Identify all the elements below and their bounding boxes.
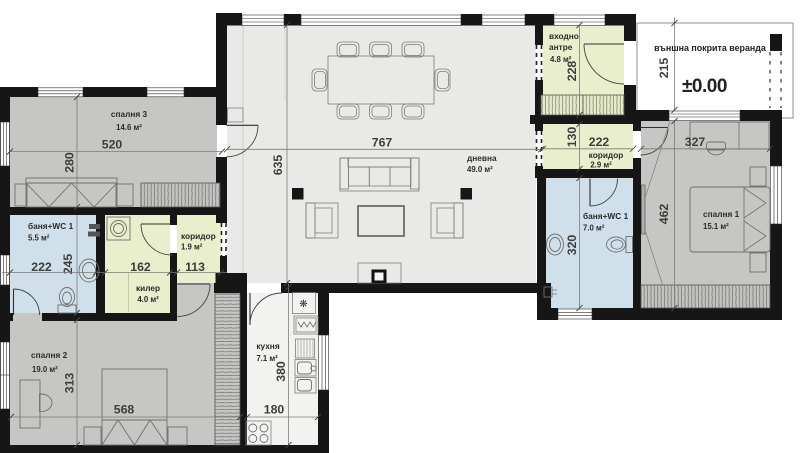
svg-text:антре: антре bbox=[549, 42, 573, 52]
svg-text:4.8 м²: 4.8 м² bbox=[550, 55, 572, 64]
svg-text:7.1 м²: 7.1 м² bbox=[256, 354, 278, 363]
svg-text:спалня 3: спалня 3 bbox=[111, 109, 148, 119]
svg-text:баня+WC 1: баня+WC 1 bbox=[583, 211, 629, 221]
svg-text:килер: килер bbox=[136, 283, 160, 293]
svg-text:162: 162 bbox=[130, 260, 151, 274]
svg-text:спалня 2: спалня 2 bbox=[31, 350, 68, 360]
svg-text:4.0 м²: 4.0 м² bbox=[137, 295, 159, 304]
svg-text:635: 635 bbox=[271, 155, 285, 176]
svg-text:14.6 м²: 14.6 м² bbox=[116, 123, 142, 132]
svg-text:320: 320 bbox=[565, 235, 579, 256]
svg-text:130: 130 bbox=[565, 127, 579, 148]
svg-text:коридор: коридор bbox=[181, 231, 216, 241]
svg-text:❋: ❋ bbox=[299, 299, 307, 310]
svg-text:19.0 м²: 19.0 м² bbox=[32, 365, 58, 374]
svg-text:520: 520 bbox=[102, 138, 123, 152]
svg-text:462: 462 bbox=[657, 204, 671, 225]
svg-text:баня+WC 1: баня+WC 1 bbox=[28, 221, 74, 231]
svg-text:222: 222 bbox=[589, 135, 610, 149]
svg-text:7.0 м²: 7.0 м² bbox=[583, 224, 605, 233]
svg-text:външна покрита веранда: външна покрита веранда bbox=[654, 43, 766, 53]
svg-text:280: 280 bbox=[63, 152, 77, 173]
svg-text:5.5 м²: 5.5 м² bbox=[28, 234, 50, 243]
svg-text:спалня 1: спалня 1 bbox=[703, 209, 740, 219]
svg-text:±0.00: ±0.00 bbox=[682, 76, 727, 97]
svg-text:коридор: коридор bbox=[589, 150, 624, 160]
svg-text:113: 113 bbox=[185, 260, 205, 274]
svg-text:222: 222 bbox=[31, 260, 52, 274]
svg-text:380: 380 bbox=[274, 361, 288, 382]
svg-text:кухня: кухня bbox=[256, 341, 279, 351]
svg-text:327: 327 bbox=[685, 135, 706, 149]
svg-text:180: 180 bbox=[264, 403, 285, 417]
svg-text:входно: входно bbox=[549, 31, 579, 41]
svg-text:245: 245 bbox=[61, 254, 75, 275]
svg-text:дневна: дневна bbox=[467, 153, 497, 163]
svg-text:15.1 м²: 15.1 м² bbox=[703, 222, 729, 231]
svg-text:2.9 м²: 2.9 м² bbox=[590, 161, 612, 170]
svg-text:215: 215 bbox=[657, 58, 671, 79]
svg-text:568: 568 bbox=[114, 403, 135, 417]
svg-text:767: 767 bbox=[372, 135, 393, 149]
svg-text:313: 313 bbox=[63, 373, 77, 394]
svg-text:1.9 м²: 1.9 м² bbox=[181, 243, 203, 252]
svg-text:49.0 м²: 49.0 м² bbox=[467, 165, 493, 174]
